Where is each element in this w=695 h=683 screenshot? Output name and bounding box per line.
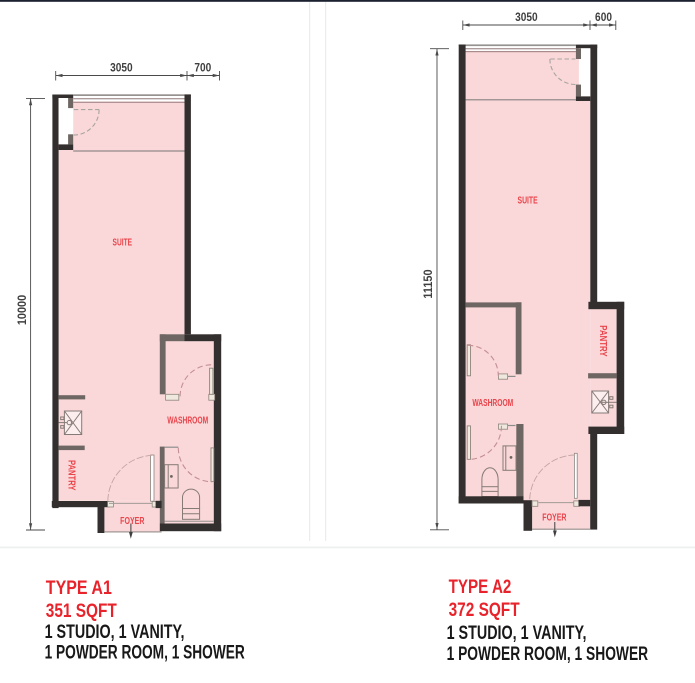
svg-text:1 POWDER ROOM, 1 SHOWER: 1 POWDER ROOM, 1 SHOWER (45, 641, 245, 663)
svg-text:3050: 3050 (110, 62, 133, 75)
svg-text:WASHROOM: WASHROOM (167, 414, 208, 426)
svg-text:1 POWDER ROOM, 1 SHOWER: 1 POWDER ROOM, 1 SHOWER (447, 642, 649, 664)
svg-text:600: 600 (595, 11, 612, 24)
svg-text:SUITE: SUITE (518, 194, 538, 206)
svg-text:351 SQFT: 351 SQFT (46, 599, 117, 621)
svg-text:TYPE A1: TYPE A1 (46, 577, 112, 599)
svg-text:700: 700 (194, 62, 211, 75)
svg-text:TYPE A2: TYPE A2 (449, 575, 512, 597)
svg-text:WASHROOM: WASHROOM (472, 397, 513, 409)
svg-text:FOYER: FOYER (542, 511, 566, 522)
svg-text:SUITE: SUITE (113, 236, 133, 248)
svg-text:PANTRY: PANTRY (66, 460, 77, 491)
svg-text:FOYER: FOYER (120, 515, 144, 526)
svg-text:PANTRY: PANTRY (598, 325, 609, 356)
svg-text:10000: 10000 (17, 295, 29, 325)
svg-text:1 STUDIO, 1 VANITY,: 1 STUDIO, 1 VANITY, (45, 621, 185, 643)
svg-text:1 STUDIO, 1 VANITY,: 1 STUDIO, 1 VANITY, (447, 622, 587, 644)
svg-text:11150: 11150 (423, 269, 435, 298)
svg-text:3050: 3050 (515, 11, 538, 24)
svg-text:372 SQFT: 372 SQFT (449, 598, 520, 620)
